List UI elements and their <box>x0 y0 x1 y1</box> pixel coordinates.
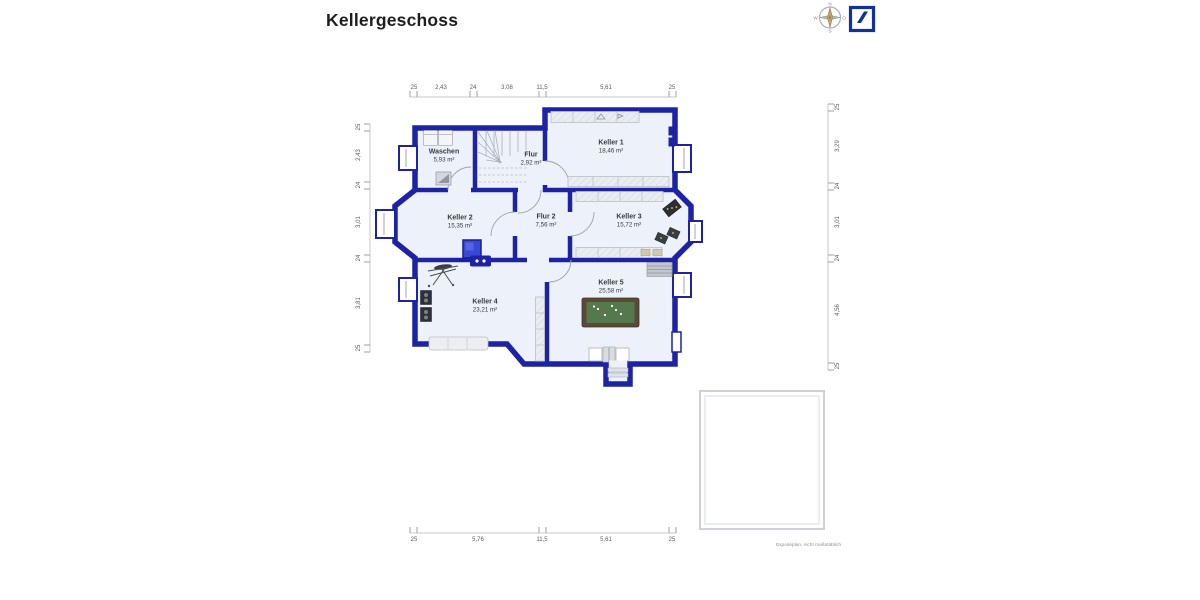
dim-label: 25 <box>669 85 676 91</box>
dim-label: 11,5 <box>536 537 547 543</box>
page-title: Kellergeschoss <box>326 10 458 31</box>
dim-label: 25 <box>669 537 676 543</box>
dim-label: 5,61 <box>600 85 612 91</box>
compass-west-label: W <box>813 15 817 20</box>
dim-label: 4,56 <box>835 304 841 316</box>
dim-label: 25 <box>356 345 362 352</box>
dim-label: 25 <box>835 104 841 111</box>
room-label-keller-3: Keller 3 15,72 m² <box>616 213 641 228</box>
dim-label: 24 <box>835 183 841 190</box>
dim-label: 25 <box>411 85 418 91</box>
compass-south-label: S <box>828 29 831 34</box>
compass-east-label: O <box>842 15 846 20</box>
dim-label: 3,01 <box>835 216 841 228</box>
dim-label: 11,5 <box>536 85 547 91</box>
dim-label: 25 <box>356 124 362 131</box>
room-label-keller-4: Keller 4 23,21 m² <box>472 298 497 313</box>
dim-label: 3,81 <box>356 297 362 309</box>
dim-label: 24 <box>835 255 841 262</box>
dim-label: 3,08 <box>501 85 513 91</box>
compass-north-label: N <box>828 2 831 7</box>
deutsche-bank-logo <box>851 8 874 31</box>
room-label-keller-5: Keller 5 25,58 m² <box>598 279 623 294</box>
dim-label: 25 <box>411 537 418 543</box>
dim-label: 5,61 <box>600 537 612 543</box>
floor-plan-page: Kellergeschoss N O S W Waschen 5,93 m² F… <box>0 0 1200 600</box>
exterior-stairs <box>647 263 672 277</box>
dim-label: 3,29 <box>835 140 841 152</box>
pool-table <box>582 298 639 327</box>
garage-outline <box>700 391 824 529</box>
room-label-waschen: Waschen 5,93 m² <box>429 148 459 163</box>
dim-label: 3,01 <box>356 216 362 228</box>
dim-label: 24 <box>356 255 362 262</box>
room-label-flur-2: Flur 2 7,56 m² <box>536 213 557 228</box>
dim-label: 2,43 <box>356 149 362 161</box>
compass-icon <box>820 7 841 28</box>
dim-label: 5,76 <box>472 537 484 543</box>
scale-disclaimer: Exposéplan, nicht maßstäblich <box>776 543 841 548</box>
dim-label: 25 <box>835 363 841 370</box>
room-label-keller-2: Keller 2 15,35 m² <box>447 214 472 229</box>
sink-appliance <box>436 172 451 185</box>
room-label-flur: Flur 2,92 m² <box>521 151 542 166</box>
exit-vestibule <box>608 361 628 378</box>
room-label-keller-1: Keller 1 18,46 m² <box>598 139 623 154</box>
dim-label: 2,43 <box>435 85 447 91</box>
dim-label: 24 <box>470 85 477 91</box>
sofa <box>429 337 488 350</box>
dim-label: 24 <box>356 182 362 189</box>
